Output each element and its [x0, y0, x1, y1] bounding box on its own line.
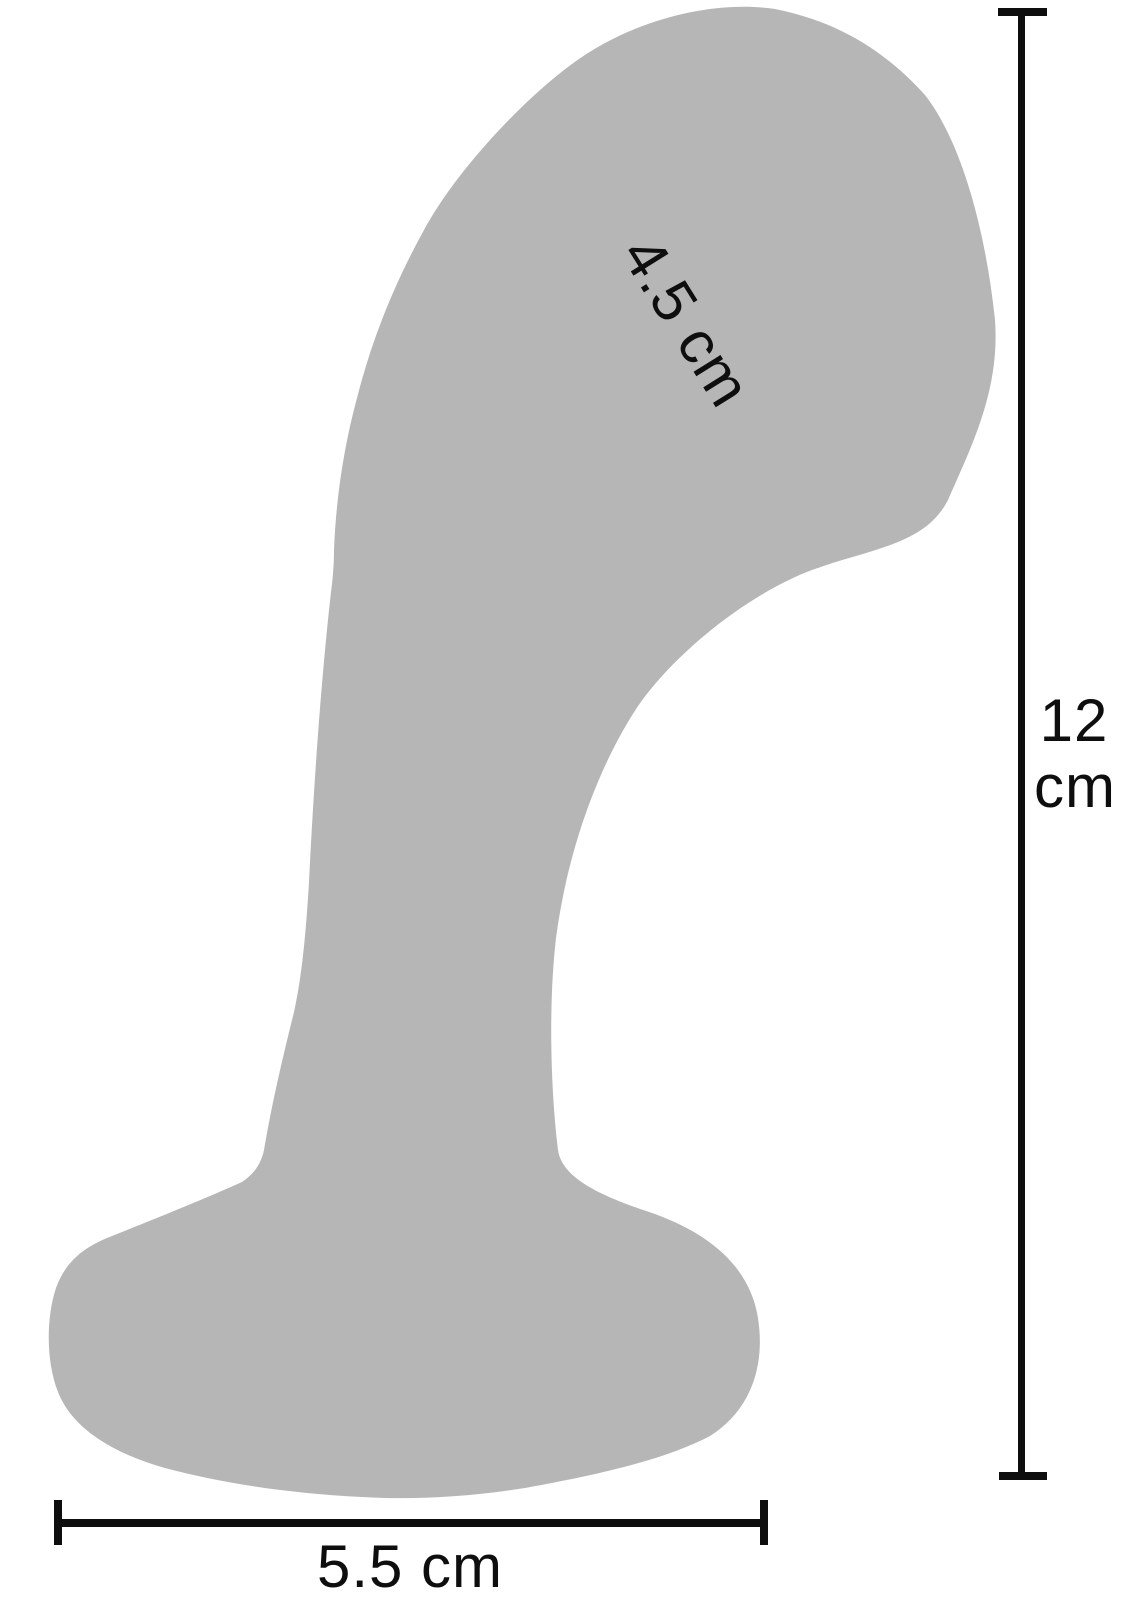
product-silhouette-shape — [49, 7, 996, 1498]
length-measure-line — [1018, 8, 1025, 1479]
width-measure-line — [54, 1519, 767, 1527]
total-length-label: 12 cm — [1034, 688, 1114, 820]
length-line-bottom-cap — [999, 1472, 1047, 1480]
dimension-diagram: 4.5 cm 12 cm 5.5 cm — [0, 0, 1129, 1600]
total-length-unit: cm — [1034, 754, 1114, 820]
product-silhouette — [0, 0, 1129, 1600]
total-length-value: 12 — [1034, 688, 1114, 754]
width-line-right-tick — [760, 1500, 768, 1545]
base-width-label: 5.5 cm — [317, 1534, 503, 1600]
